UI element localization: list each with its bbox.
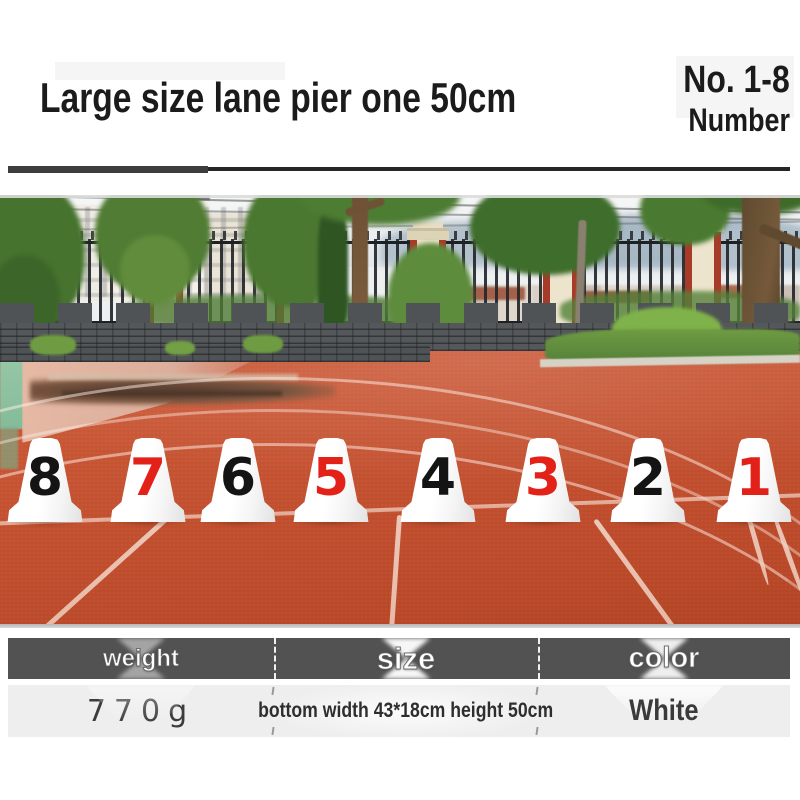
grass-tuft	[165, 341, 195, 355]
spec-header-weight: weight	[8, 638, 274, 679]
underline-thick-segment	[8, 166, 208, 173]
cone-number: 4	[399, 442, 477, 514]
lane-cone: 5	[292, 438, 370, 522]
cone-number: 7	[109, 442, 187, 514]
cone-number: 8	[6, 442, 84, 514]
lane-cone: 7	[109, 438, 187, 522]
spec-table-values: 770g bottom width 43*18cm height 50cm Wh…	[8, 685, 790, 737]
badge-line1: No. 1-8	[684, 58, 790, 102]
spec-table-header: weight size color	[8, 638, 790, 679]
page-title-text: Large size lane pier one 50cm	[40, 74, 516, 122]
lane-cone: 3	[504, 438, 582, 522]
page-title: Large size lane pier one 50cm	[40, 74, 635, 122]
product-page: Large size lane pier one 50cm No. 1-8 Nu…	[0, 0, 800, 800]
spec-value-color: White	[629, 694, 698, 728]
cone-number: 6	[199, 442, 277, 514]
grass-tuft	[243, 335, 283, 353]
number-range-badge: No. 1-8 Number	[663, 58, 790, 138]
spec-value-color-cell: White	[538, 685, 790, 737]
spec-value-color-text: White	[623, 694, 705, 728]
spec-header-color: color	[538, 638, 790, 679]
spec-header-size: size	[274, 638, 538, 679]
cone-number: 3	[504, 442, 582, 514]
lane-cone: 4	[399, 438, 477, 522]
badge-line2: Number	[688, 102, 790, 138]
underline-thin-segment	[208, 167, 790, 171]
photo-top-edge	[0, 195, 800, 198]
cone-number: 1	[715, 442, 793, 514]
title-underline	[8, 166, 790, 173]
spec-header-weight-label: weight	[103, 645, 179, 673]
lane-cone: 8	[6, 438, 84, 522]
spec-value-size-cell: bottom width 43*18cm height 50cm	[274, 685, 538, 737]
grass-tuft	[30, 335, 76, 355]
spec-value-size: bottom width 43*18cm height 50cm	[258, 699, 553, 723]
photo-bottom-edge	[0, 624, 800, 628]
cone-number: 2	[609, 442, 687, 514]
spec-header-size-label: size	[377, 641, 436, 677]
spec-header-color-label: color	[629, 642, 700, 675]
lane-cone: 6	[199, 438, 277, 522]
spec-value-size-text: bottom width 43*18cm height 50cm	[230, 699, 581, 723]
product-photo: 8 7 6 5 4 3 2 1	[0, 195, 800, 628]
cone-number: 5	[292, 442, 370, 514]
lane-cone: 2	[609, 438, 687, 522]
lane-cone: 1	[715, 438, 793, 522]
running-track: 8 7 6 5 4 3 2 1	[0, 347, 800, 628]
tree	[120, 235, 190, 305]
